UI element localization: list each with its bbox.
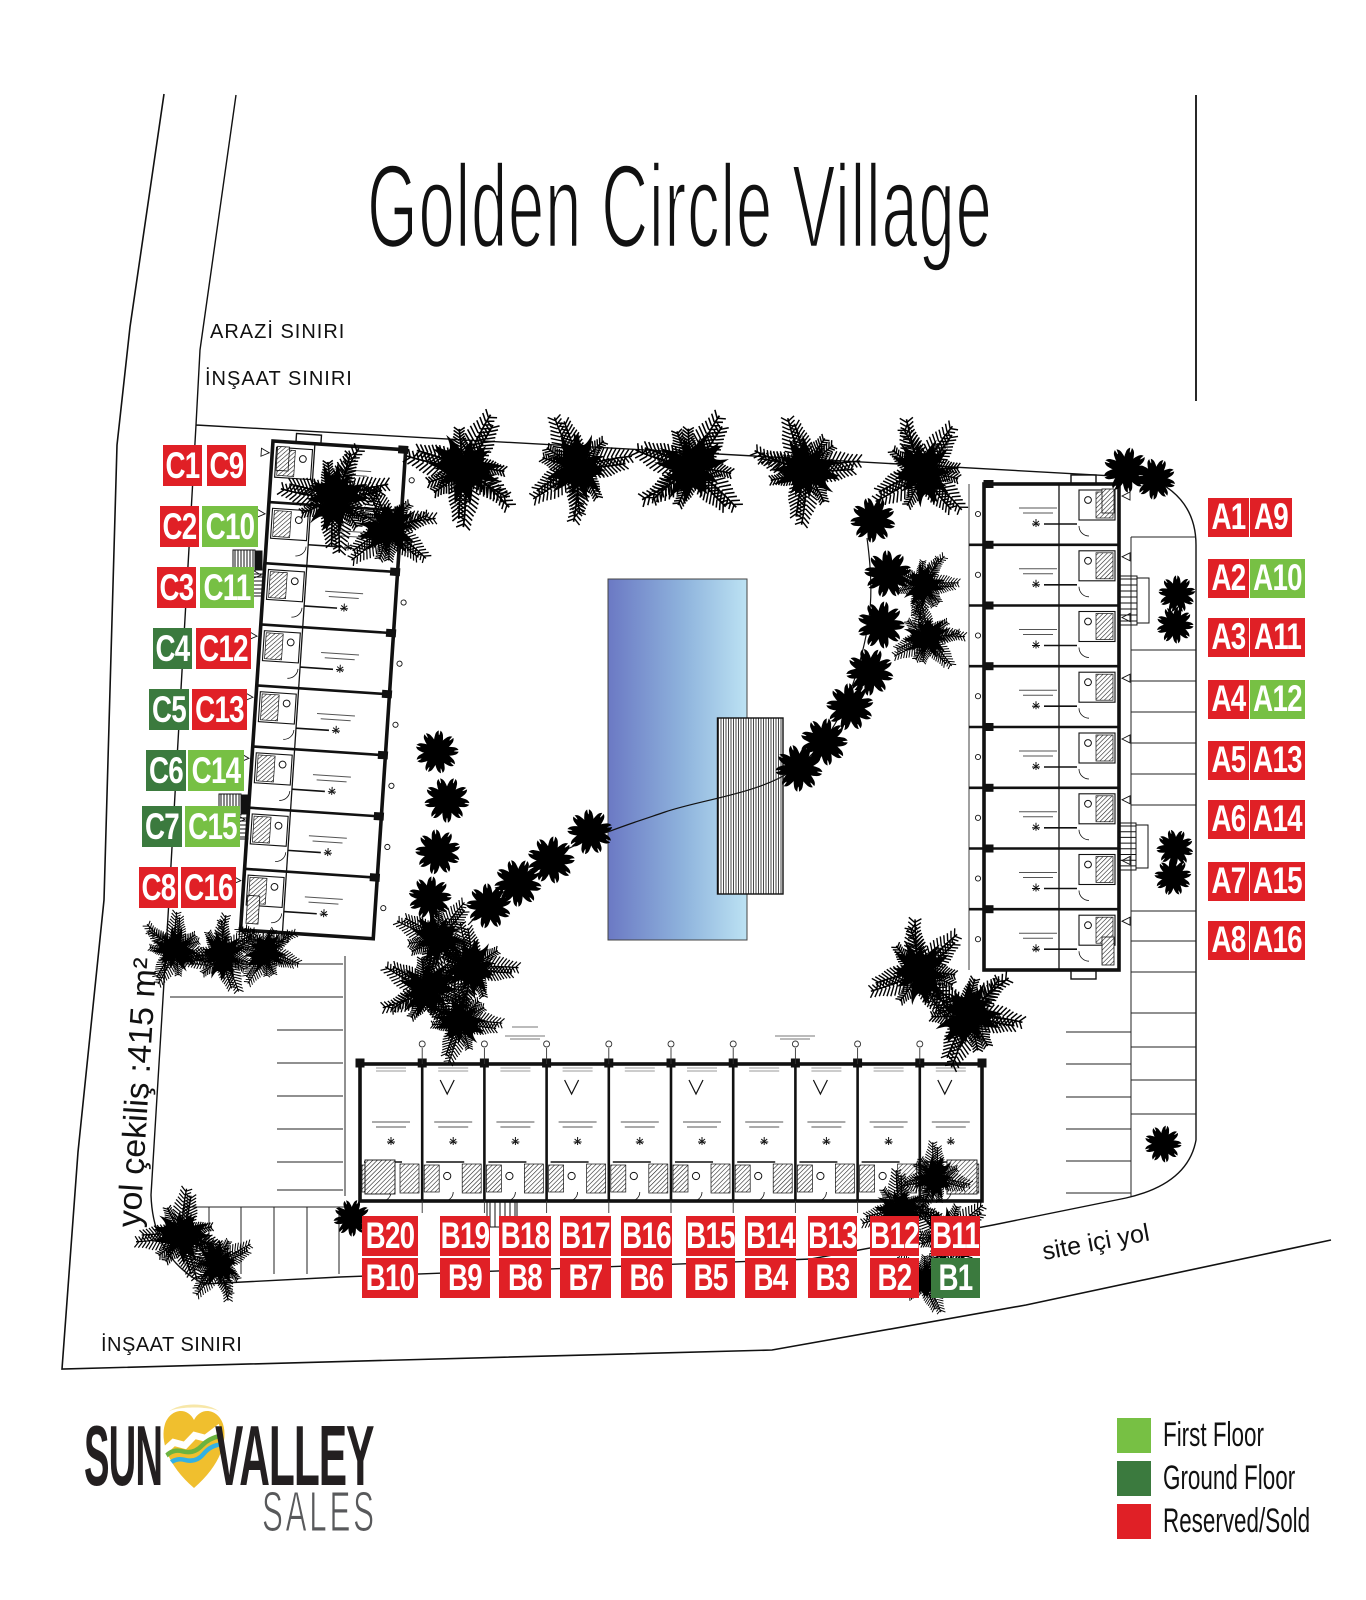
svg-text:A4: A4 (1212, 677, 1247, 719)
svg-text:B19: B19 (441, 1214, 490, 1256)
svg-text:A9: A9 (1254, 495, 1288, 537)
svg-text:C3: C3 (160, 566, 194, 608)
svg-text:SALES: SALES (262, 1479, 377, 1543)
svg-text:C11: C11 (203, 566, 251, 608)
svg-text:B10: B10 (366, 1256, 415, 1298)
svg-text:Reserved/Sold: Reserved/Sold (1163, 1502, 1310, 1540)
svg-text:B17: B17 (561, 1214, 610, 1256)
svg-text:B9: B9 (448, 1256, 482, 1298)
svg-text:A6: A6 (1212, 797, 1246, 839)
svg-text:A2: A2 (1212, 556, 1246, 598)
svg-text:B15: B15 (686, 1214, 735, 1256)
svg-text:C6: C6 (149, 749, 183, 791)
svg-text:C12: C12 (199, 627, 248, 669)
svg-text:A7: A7 (1212, 859, 1246, 901)
svg-text:C7: C7 (145, 805, 179, 847)
svg-text:A14: A14 (1253, 797, 1302, 839)
svg-text:C8: C8 (142, 866, 177, 908)
svg-text:İNŞAAT SINIRI: İNŞAAT SINIRI (205, 367, 353, 390)
svg-text:A13: A13 (1253, 738, 1302, 780)
svg-text:B13: B13 (808, 1214, 857, 1256)
svg-text:C1: C1 (166, 444, 201, 486)
svg-text:B6: B6 (630, 1256, 664, 1298)
svg-text:B1: B1 (939, 1256, 974, 1298)
svg-text:B2: B2 (878, 1256, 912, 1298)
svg-text:A8: A8 (1212, 918, 1247, 960)
svg-text:B4: B4 (754, 1256, 789, 1298)
svg-text:A3: A3 (1212, 615, 1246, 657)
svg-text:B20: B20 (366, 1214, 415, 1256)
svg-text:İNŞAAT SINIRI: İNŞAAT SINIRI (101, 1333, 242, 1356)
svg-text:A12: A12 (1253, 677, 1302, 719)
svg-text:C15: C15 (188, 805, 237, 847)
svg-text:C4: C4 (156, 627, 191, 669)
svg-text:C5: C5 (152, 688, 187, 730)
svg-text:B5: B5 (694, 1256, 729, 1298)
svg-text:B14: B14 (746, 1214, 795, 1256)
svg-text:ARAZİ SINIRI: ARAZİ SINIRI (210, 320, 345, 343)
svg-text:B11: B11 (932, 1214, 980, 1256)
svg-text:SUN: SUN (84, 1408, 162, 1503)
svg-text:C14: C14 (192, 749, 241, 791)
svg-text:B12: B12 (870, 1214, 919, 1256)
svg-text:A1: A1 (1212, 495, 1247, 537)
svg-text:C2: C2 (163, 505, 197, 547)
svg-text:First Floor: First Floor (1163, 1416, 1264, 1454)
svg-text:C13: C13 (195, 688, 244, 730)
svg-text:C9: C9 (210, 444, 244, 486)
svg-text:A16: A16 (1253, 918, 1302, 960)
svg-text:C16: C16 (184, 866, 233, 908)
svg-text:Golden Circle Village: Golden Circle Village (367, 142, 993, 273)
svg-text:A11: A11 (1254, 615, 1302, 657)
svg-text:B18: B18 (501, 1214, 550, 1256)
svg-text:Ground Floor: Ground Floor (1163, 1459, 1295, 1497)
svg-text:A15: A15 (1253, 859, 1302, 901)
svg-text:B16: B16 (622, 1214, 671, 1256)
svg-text:B8: B8 (508, 1256, 543, 1298)
svg-text:B7: B7 (569, 1256, 603, 1298)
svg-text:B3: B3 (816, 1256, 850, 1298)
svg-text:A5: A5 (1212, 738, 1247, 780)
svg-text:C10: C10 (206, 505, 255, 547)
svg-text:A10: A10 (1253, 556, 1302, 598)
